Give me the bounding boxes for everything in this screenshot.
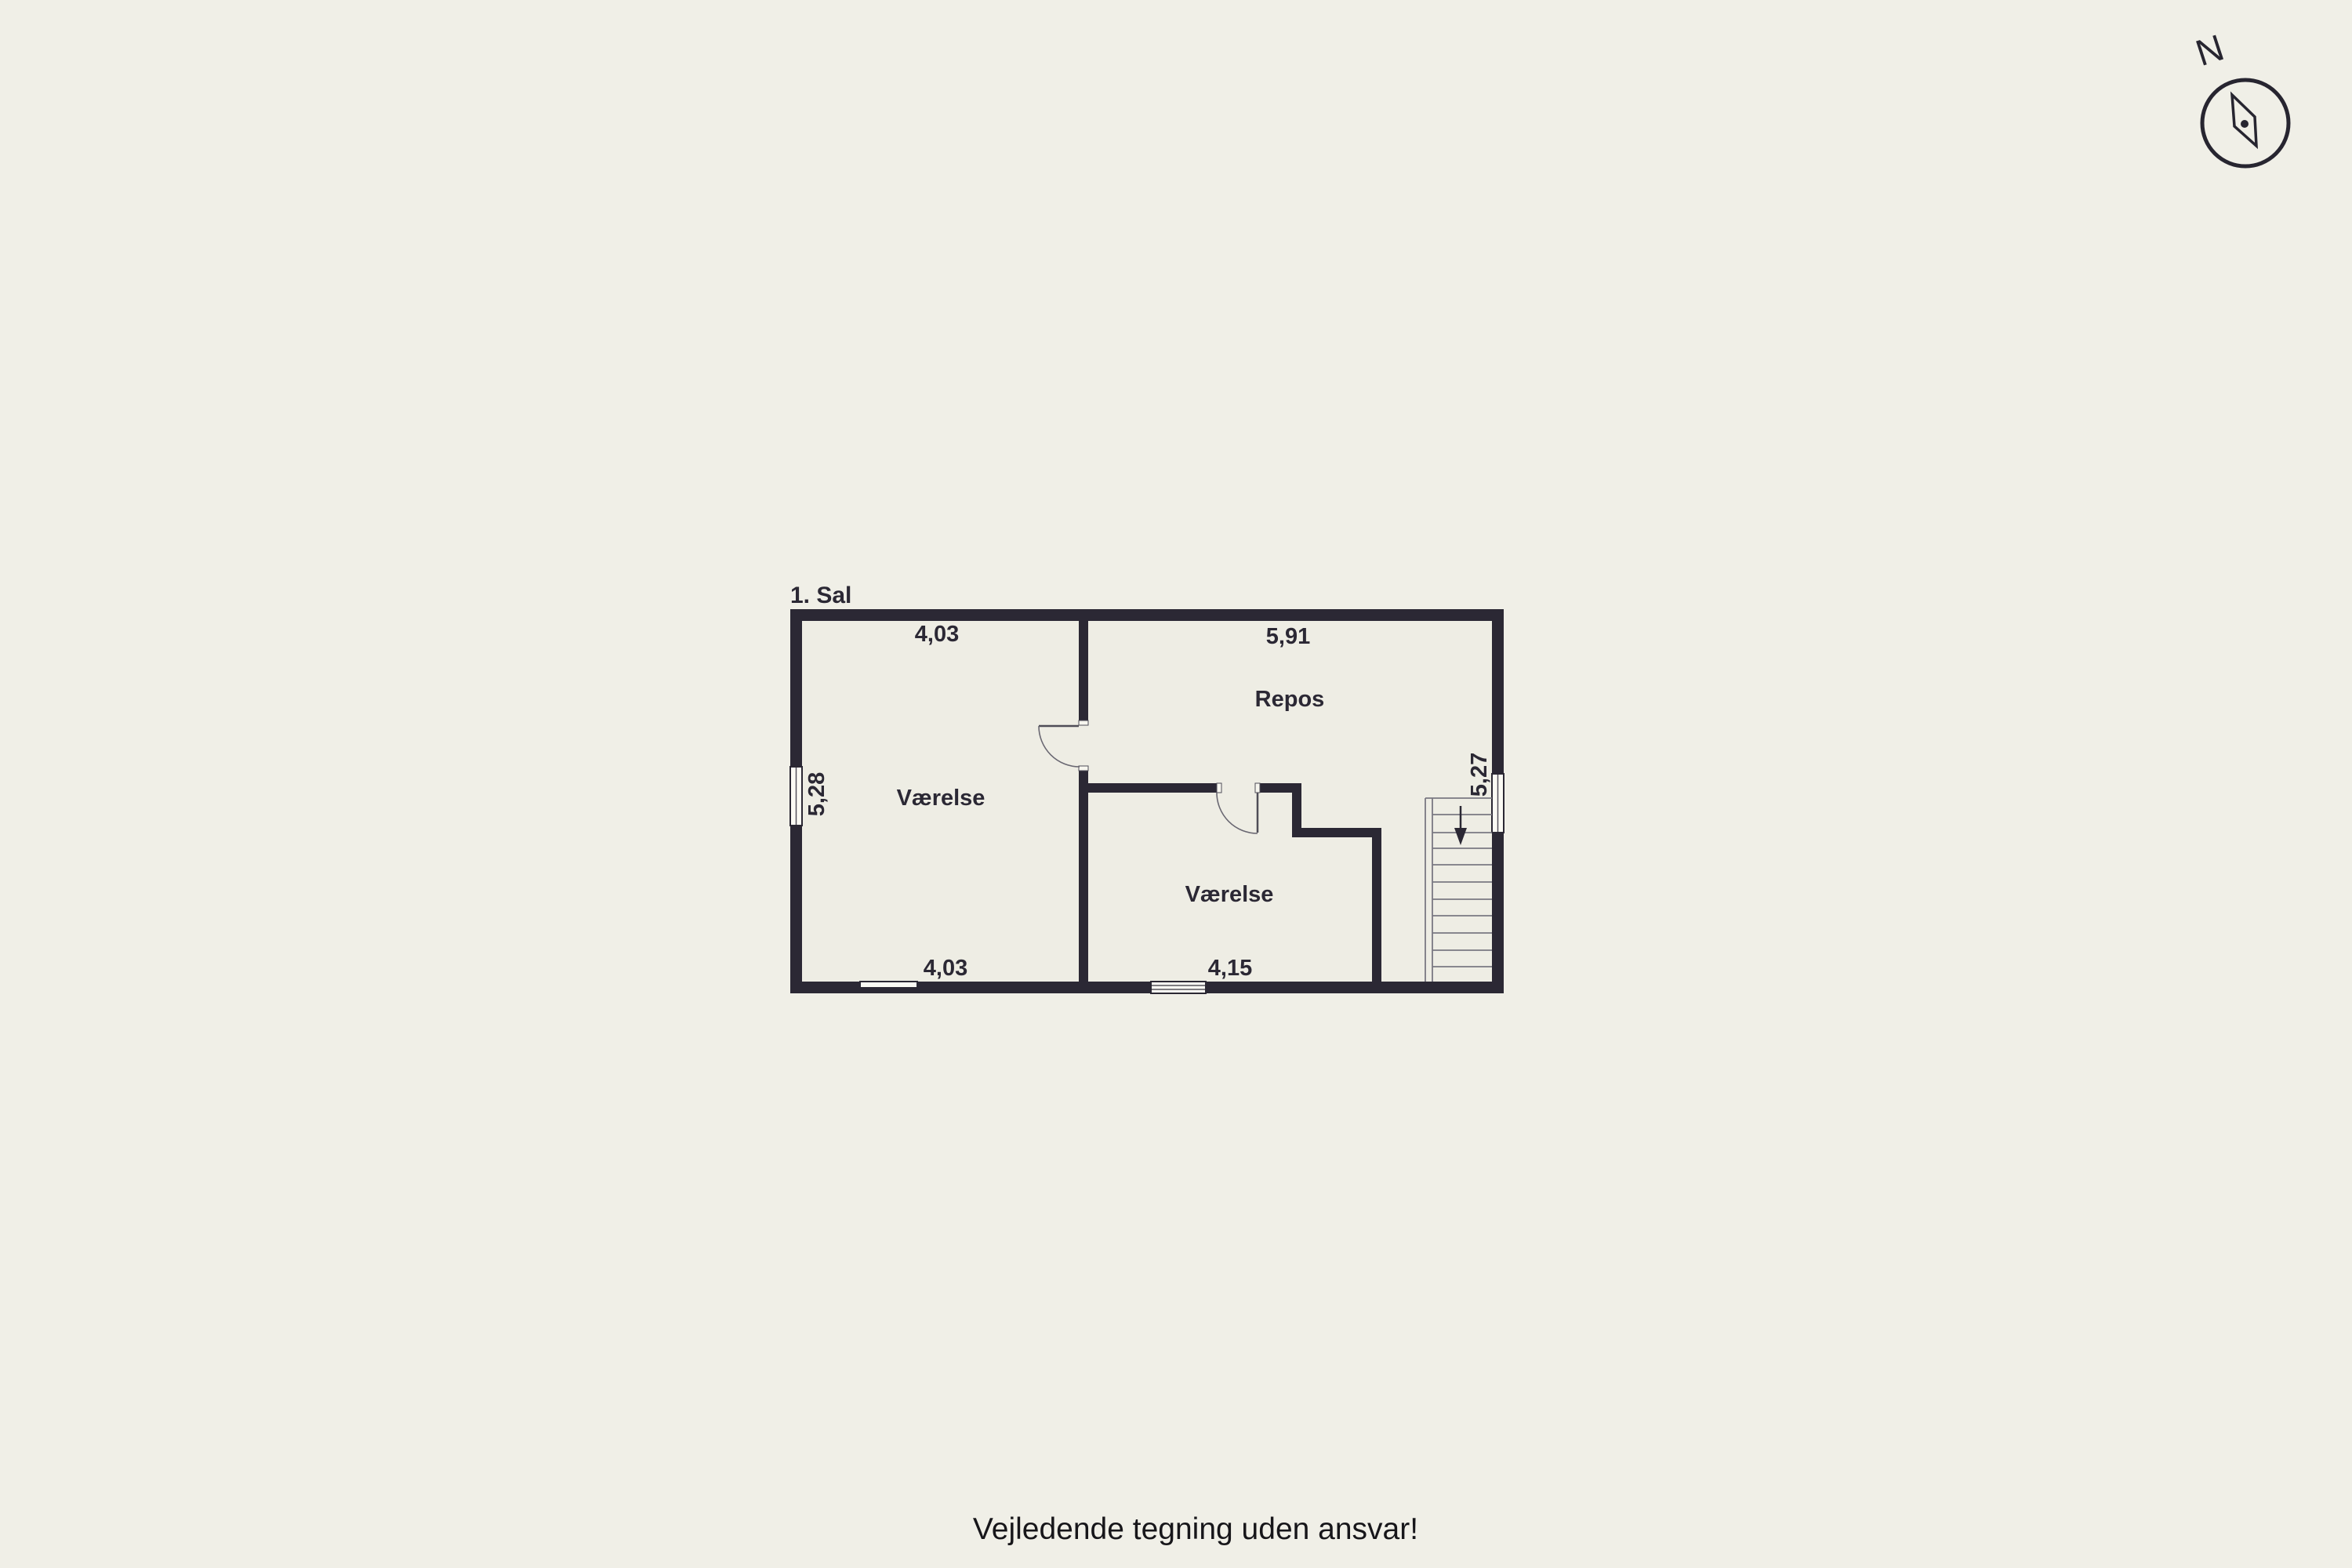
floor-plan: 1. Sal 4,03 5,91 Repos Værelse Værelse 5… [790, 583, 1504, 993]
window-left [790, 767, 802, 826]
compass-north-label: N [2190, 26, 2229, 74]
dim-bottom-left: 4,03 [924, 956, 967, 981]
compass: N [2190, 26, 2288, 166]
room-label-landing: Repos [1255, 687, 1325, 712]
dim-top-left: 4,03 [915, 622, 959, 647]
room-label-room1: Værelse [897, 786, 985, 811]
window-bottom-left [860, 982, 917, 988]
dim-bottom-right: 4,15 [1208, 956, 1252, 981]
dim-right: 5,27 [1467, 753, 1492, 797]
floor-plan-page: 1. Sal 4,03 5,91 Repos Værelse Værelse 5… [0, 0, 2352, 1568]
disclaimer-text: Vejledende tegning uden ansvar! [973, 1512, 1418, 1546]
window-right [1492, 774, 1504, 833]
compass-center-dot [2241, 120, 2249, 128]
dim-left: 5,28 [804, 772, 829, 816]
floor-label: 1. Sal [790, 583, 851, 608]
floor-plan-canvas: 1. Sal 4,03 5,91 Repos Værelse Værelse 5… [0, 0, 2352, 1568]
window-bottom-right [1151, 982, 1206, 993]
room-label-room2: Værelse [1185, 882, 1274, 907]
dim-top-right: 5,91 [1266, 624, 1310, 649]
